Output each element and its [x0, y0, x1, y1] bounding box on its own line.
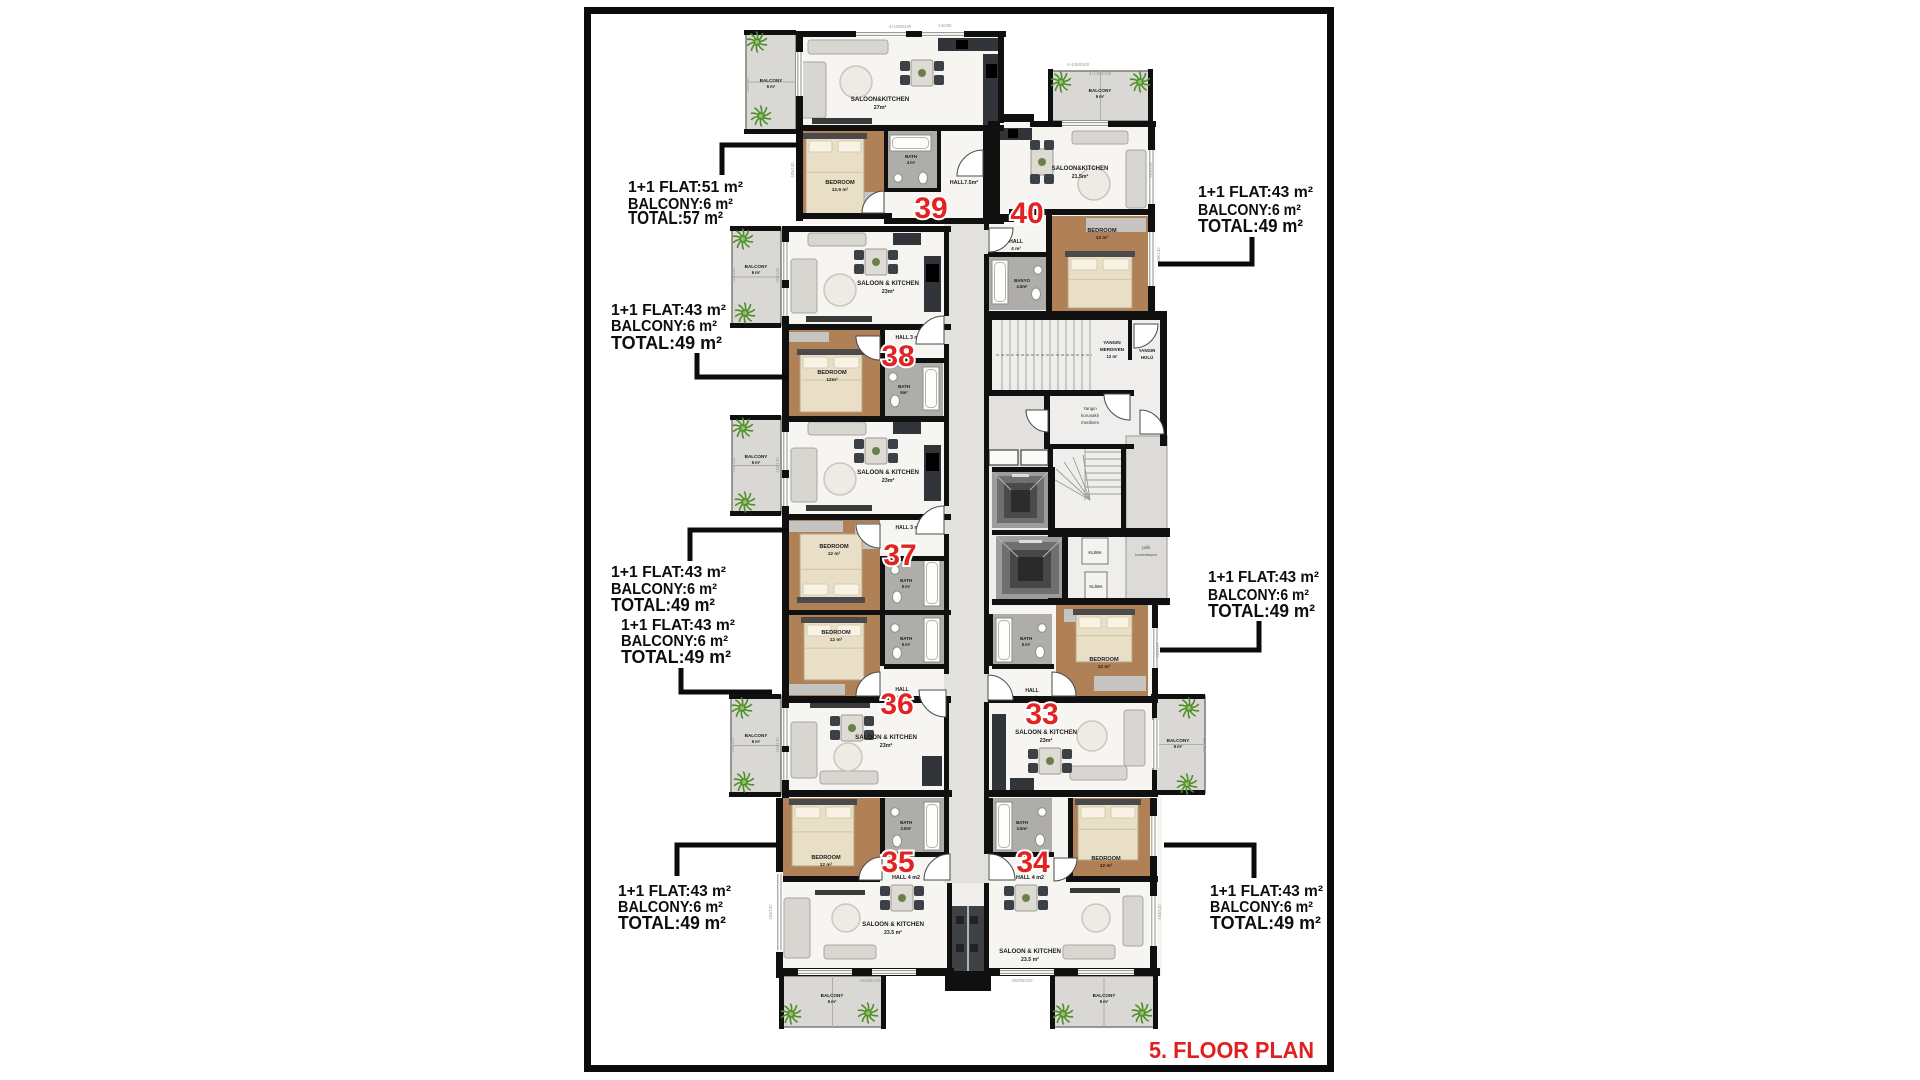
svg-text:4+1390/340: 4+1390/340 — [889, 24, 912, 29]
svg-text:SALOON&KITCHEN: SALOON&KITCHEN — [1052, 166, 1109, 172]
svg-text:405/135: 405/135 — [1148, 162, 1153, 178]
svg-text:TOTAL:49 m²: TOTAL:49 m² — [1208, 601, 1315, 621]
svg-text:6 m²: 6 m² — [828, 999, 837, 1004]
svg-text:6 m²: 6 m² — [1174, 744, 1183, 749]
svg-text:34: 34 — [1016, 846, 1050, 879]
svg-text:39: 39 — [914, 192, 947, 225]
svg-text:6 m²: 6 m² — [752, 270, 761, 275]
svg-text:140/35: 140/35 — [939, 23, 952, 28]
svg-text:HALL: HALL — [1009, 239, 1024, 245]
svg-text:13 m²: 13 m² — [1096, 235, 1109, 241]
svg-text:BEDROOM: BEDROOM — [821, 630, 851, 636]
svg-text:5 m²: 5 m² — [902, 584, 911, 589]
svg-text:BALCONY: BALCONY — [821, 993, 844, 998]
svg-text:33: 33 — [1025, 698, 1058, 731]
svg-text:1+1 FLAT:43 m²: 1+1 FLAT:43 m² — [611, 302, 726, 319]
svg-text:HALL7.5m²: HALL7.5m² — [950, 180, 979, 186]
svg-text:BALCONY: BALCONY — [1167, 738, 1190, 743]
svg-text:38: 38 — [881, 340, 914, 373]
svg-text:korunaklı: korunaklı — [1081, 413, 1099, 418]
svg-text:6 m²: 6 m² — [752, 460, 761, 465]
svg-text:SALOON & KITCHEN: SALOON & KITCHEN — [857, 469, 919, 476]
svg-text:BANYO: BANYO — [1014, 278, 1030, 283]
svg-text:BATH: BATH — [898, 384, 910, 389]
svg-text:BATH: BATH — [1020, 636, 1032, 641]
svg-text:409/130: 409/130 — [790, 162, 795, 178]
svg-text:SALOON&KITCHEN: SALOON&KITCHEN — [851, 96, 910, 103]
svg-text:6 m²: 6 m² — [1100, 999, 1109, 1004]
svg-text:5 m²: 5 m² — [1022, 642, 1031, 647]
svg-text:27m²: 27m² — [874, 105, 887, 111]
svg-text:SALOON & KITCHEN: SALOON & KITCHEN — [857, 280, 919, 287]
svg-text:12 m²: 12 m² — [830, 637, 843, 643]
svg-text:6 m²: 6 m² — [752, 739, 761, 744]
svg-text:1+1 FLAT:43 m²: 1+1 FLAT:43 m² — [611, 564, 726, 581]
svg-text:SALOON & KITCHEN: SALOON & KITCHEN — [855, 734, 917, 741]
svg-text:12 m²: 12 m² — [1107, 354, 1119, 359]
svg-text:235/135: 235/135 — [745, 77, 750, 93]
svg-text:403/130: 403/130 — [1157, 904, 1162, 920]
svg-text:23.5 m²: 23.5 m² — [884, 930, 902, 936]
svg-text:1+1 FLAT:43 m²: 1+1 FLAT:43 m² — [1210, 883, 1323, 900]
svg-text:konstrüksiyon: konstrüksiyon — [1135, 553, 1157, 557]
svg-text:YANGIN: YANGIN — [1139, 348, 1156, 353]
svg-text:BEDROOM: BEDROOM — [1091, 856, 1121, 862]
svg-text:merdiven: merdiven — [1081, 420, 1100, 425]
svg-text:KLİMA: KLİMA — [1088, 550, 1101, 555]
svg-text:12 m²: 12 m² — [820, 862, 833, 868]
svg-text:BATH: BATH — [1016, 820, 1028, 825]
svg-text:21.5m²: 21.5m² — [1072, 174, 1089, 180]
svg-text:405/135: 405/135 — [775, 267, 780, 283]
svg-text:HALL: HALL — [1025, 688, 1038, 694]
svg-text:6 m²: 6 m² — [1096, 94, 1105, 99]
svg-text:BALCONY: BALCONY — [1093, 993, 1116, 998]
svg-text:3.5m²: 3.5m² — [901, 826, 913, 831]
svg-text:400/95/340: 400/95/340 — [1012, 978, 1034, 983]
svg-text:23m²: 23m² — [880, 743, 893, 749]
svg-text:BATH: BATH — [900, 636, 912, 641]
svg-text:BALCONY: BALCONY — [745, 733, 768, 738]
svg-text:BEDROOM: BEDROOM — [817, 370, 847, 376]
svg-text:3.5m²: 3.5m² — [1017, 826, 1029, 831]
svg-text:BALCONY: BALCONY — [745, 454, 768, 459]
svg-text:4+1380/100: 4+1380/100 — [1067, 62, 1090, 67]
svg-text:1+1 FLAT:43 m²: 1+1 FLAT:43 m² — [618, 883, 731, 900]
svg-text:5. FLOOR PLAN: 5. FLOOR PLAN — [1149, 1037, 1314, 1063]
svg-text:TOTAL:49 m²: TOTAL:49 m² — [1198, 216, 1303, 236]
svg-text:12 m²: 12 m² — [1100, 863, 1113, 869]
svg-text:205/135: 205/135 — [731, 267, 736, 283]
svg-text:BALCONY: BALCONY — [745, 264, 768, 269]
svg-text:405/135: 405/135 — [775, 737, 780, 753]
svg-text:BATH: BATH — [900, 578, 912, 583]
svg-text:12m²: 12m² — [826, 377, 838, 383]
svg-text:400/95/340: 400/95/340 — [860, 978, 882, 983]
svg-text:TOTAL:57 m²: TOTAL:57 m² — [628, 208, 723, 228]
svg-text:5m²: 5m² — [900, 390, 908, 395]
svg-text:23m²: 23m² — [882, 478, 895, 484]
svg-text:403/130: 403/130 — [768, 904, 773, 920]
svg-text:BEDROOM: BEDROOM — [811, 855, 841, 861]
svg-text:405/135: 405/135 — [775, 457, 780, 473]
svg-text:KLİMA: KLİMA — [1089, 584, 1102, 589]
svg-text:405/135: 405/135 — [1202, 737, 1207, 753]
svg-text:BEDROOM: BEDROOM — [1087, 228, 1117, 234]
svg-text:4 m²: 4 m² — [1011, 246, 1021, 252]
svg-text:1+1 FLAT:51 m²: 1+1 FLAT:51 m² — [628, 179, 743, 196]
svg-text:12.5 m²: 12.5 m² — [832, 187, 849, 193]
svg-text:BEDROOM: BEDROOM — [819, 544, 849, 550]
svg-text:TOTAL:49 m²: TOTAL:49 m² — [1210, 913, 1321, 933]
svg-text:MERDIVEN: MERDIVEN — [1100, 347, 1125, 352]
svg-text:35: 35 — [881, 846, 914, 879]
svg-text:YANGIN: YANGIN — [1103, 340, 1121, 345]
svg-text:TOTAL:49 m²: TOTAL:49 m² — [611, 595, 715, 615]
svg-text:Yangın: Yangın — [1083, 406, 1097, 411]
svg-text:36: 36 — [880, 688, 913, 721]
svg-text:4 m²: 4 m² — [907, 160, 916, 165]
svg-text:408/130: 408/130 — [1156, 247, 1161, 263]
svg-text:23.5 m²: 23.5 m² — [1021, 957, 1039, 963]
svg-text:TOTAL:49 m²: TOTAL:49 m² — [618, 913, 726, 933]
svg-text:205/135: 205/135 — [730, 737, 735, 753]
svg-text:çelik: çelik — [1142, 545, 1152, 550]
svg-text:5 m²: 5 m² — [902, 642, 911, 647]
svg-text:12 m²: 12 m² — [828, 551, 841, 557]
svg-text:12 m²: 12 m² — [1098, 664, 1111, 670]
svg-text:4+1380/100: 4+1380/100 — [1089, 71, 1112, 76]
svg-text:BALCONY: BALCONY — [1089, 88, 1112, 93]
svg-text:402/107: 402/107 — [1155, 642, 1160, 658]
svg-text:1+1 FLAT:43 m²: 1+1 FLAT:43 m² — [1208, 569, 1319, 586]
svg-text:BALCONY: BALCONY — [760, 78, 783, 83]
svg-text:40: 40 — [1010, 197, 1043, 230]
svg-text:23m²: 23m² — [882, 289, 895, 295]
svg-text:BATH: BATH — [900, 820, 912, 825]
svg-text:BEDROOM: BEDROOM — [825, 180, 855, 186]
svg-text:TOTAL:49 m²: TOTAL:49 m² — [611, 333, 722, 353]
svg-text:SALOON & KITCHEN: SALOON & KITCHEN — [999, 948, 1061, 955]
svg-text:TOTAL:49 m²: TOTAL:49 m² — [621, 647, 731, 667]
svg-text:4.5m²: 4.5m² — [1017, 284, 1029, 289]
svg-text:BEDROOM: BEDROOM — [1089, 657, 1119, 663]
svg-text:37: 37 — [883, 539, 916, 572]
svg-text:1+1 FLAT:43 m²: 1+1 FLAT:43 m² — [1198, 184, 1313, 201]
svg-text:HOLÜ: HOLÜ — [1141, 355, 1153, 360]
svg-text:23m²: 23m² — [1040, 738, 1053, 744]
svg-text:1+1 FLAT:43 m²: 1+1 FLAT:43 m² — [621, 617, 735, 634]
svg-text:6 m²: 6 m² — [767, 84, 776, 89]
svg-text:205/135: 205/135 — [731, 457, 736, 473]
svg-text:SALOON & KITCHEN: SALOON & KITCHEN — [862, 921, 924, 928]
svg-text:BATH: BATH — [905, 154, 917, 159]
